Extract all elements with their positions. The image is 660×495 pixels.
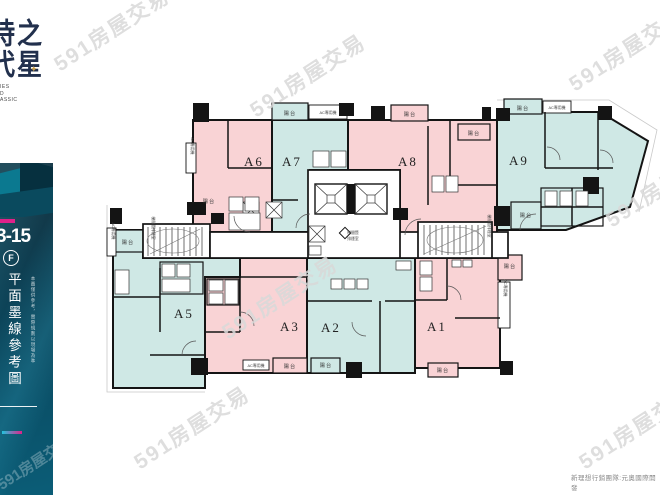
svg-text:陽台: 陽台 [284, 109, 296, 117]
sidebar-panel: 3-15 F 平面墨線參考圖 本圖僅供參考，實際規劃以現場為準 591房屋交易 [0, 163, 53, 495]
logo-star-icon: ✦ [30, 64, 38, 75]
svg-text:591房屋交易: 591房屋交易 [130, 382, 255, 475]
unit-a5-label: A5 [174, 306, 194, 321]
sidebar-watermark: 591房屋交易 [0, 431, 53, 495]
accent-bar [0, 219, 15, 223]
unit-a7-label: A7 [282, 154, 302, 169]
svg-text:陽台: 陽台 [284, 362, 296, 370]
unit-a9-label: A9 [509, 153, 529, 168]
svg-text:AC專用機: AC專用機 [247, 363, 264, 368]
logo-subtext: IES D ASSIC [0, 84, 53, 104]
brand-logo: 時代 之星 ✦ IES D ASSIC [0, 0, 53, 163]
svg-text:梯間暨排煙室: 梯間暨排煙室 [151, 216, 156, 239]
svg-text:排煙室: 排煙室 [347, 236, 359, 241]
svg-text:陽台: 陽台 [517, 104, 529, 112]
logo-char-row1: 時代 [0, 18, 17, 80]
svg-text:陽台: 陽台 [437, 366, 449, 374]
svg-text:AC專用機: AC專用機 [319, 110, 336, 115]
marketing-credit: 新理想行銷團隊:元奧國際開發 [571, 472, 659, 492]
svg-text:陽台: 陽台 [203, 197, 215, 205]
floorplan-page: 梯間暨 排煙室 梯間暨排煙室 梯間暨排煙室 A6 A7 A8 A9 A5 A3 … [0, 0, 660, 495]
unit-a8-label: A8 [398, 154, 418, 169]
svg-text:陽台: 陽台 [122, 238, 134, 246]
svg-text:AC專用機: AC專用機 [548, 105, 565, 110]
svg-text:AC專用機: AC專用機 [111, 222, 116, 239]
svg-text:陽台: 陽台 [404, 110, 416, 118]
svg-text:梯間暨: 梯間暨 [347, 230, 359, 235]
unit-a3-label: A3 [280, 319, 300, 334]
elevator-icon [315, 184, 387, 214]
svg-text:陽台: 陽台 [504, 262, 516, 270]
svg-text:梯間暨排煙室: 梯間暨排煙室 [487, 214, 492, 237]
svg-text:陽台: 陽台 [320, 361, 332, 369]
unit-a6-label: A6 [244, 154, 264, 169]
svg-text:AC專用機: AC專用機 [503, 279, 508, 296]
svg-text:591房屋交易: 591房屋交易 [575, 382, 660, 475]
plan-title-vertical: 平面墨線參考圖 [3, 272, 23, 390]
svg-text:陽台: 陽台 [520, 211, 532, 219]
svg-text:AC專用機: AC專用機 [190, 137, 195, 154]
svg-text:591房屋交易: 591房屋交易 [565, 4, 660, 97]
floorplan-drawing: 梯間暨 排煙室 梯間暨排煙室 梯間暨排煙室 A6 A7 A8 A9 A5 A3 … [0, 0, 660, 495]
floor-badge: F [3, 250, 19, 266]
floor-range: 3-15 [0, 227, 53, 247]
svg-text:陽台: 陽台 [468, 129, 480, 137]
divider-line [0, 406, 37, 407]
unit-a2-label: A2 [321, 320, 341, 335]
plan-disclaimer-vertical: 本圖僅供參考，實際規劃以現場為準 [30, 276, 36, 372]
svg-text:591房屋交易: 591房屋交易 [50, 0, 175, 76]
gradient-bar [2, 431, 22, 434]
unit-a1-label: A1 [427, 319, 447, 334]
sidebar: 時代 之星 ✦ IES D ASSIC 3-15 F 平面墨線參考圖 本圖僅供參… [0, 0, 53, 495]
building-illustration [0, 163, 53, 217]
